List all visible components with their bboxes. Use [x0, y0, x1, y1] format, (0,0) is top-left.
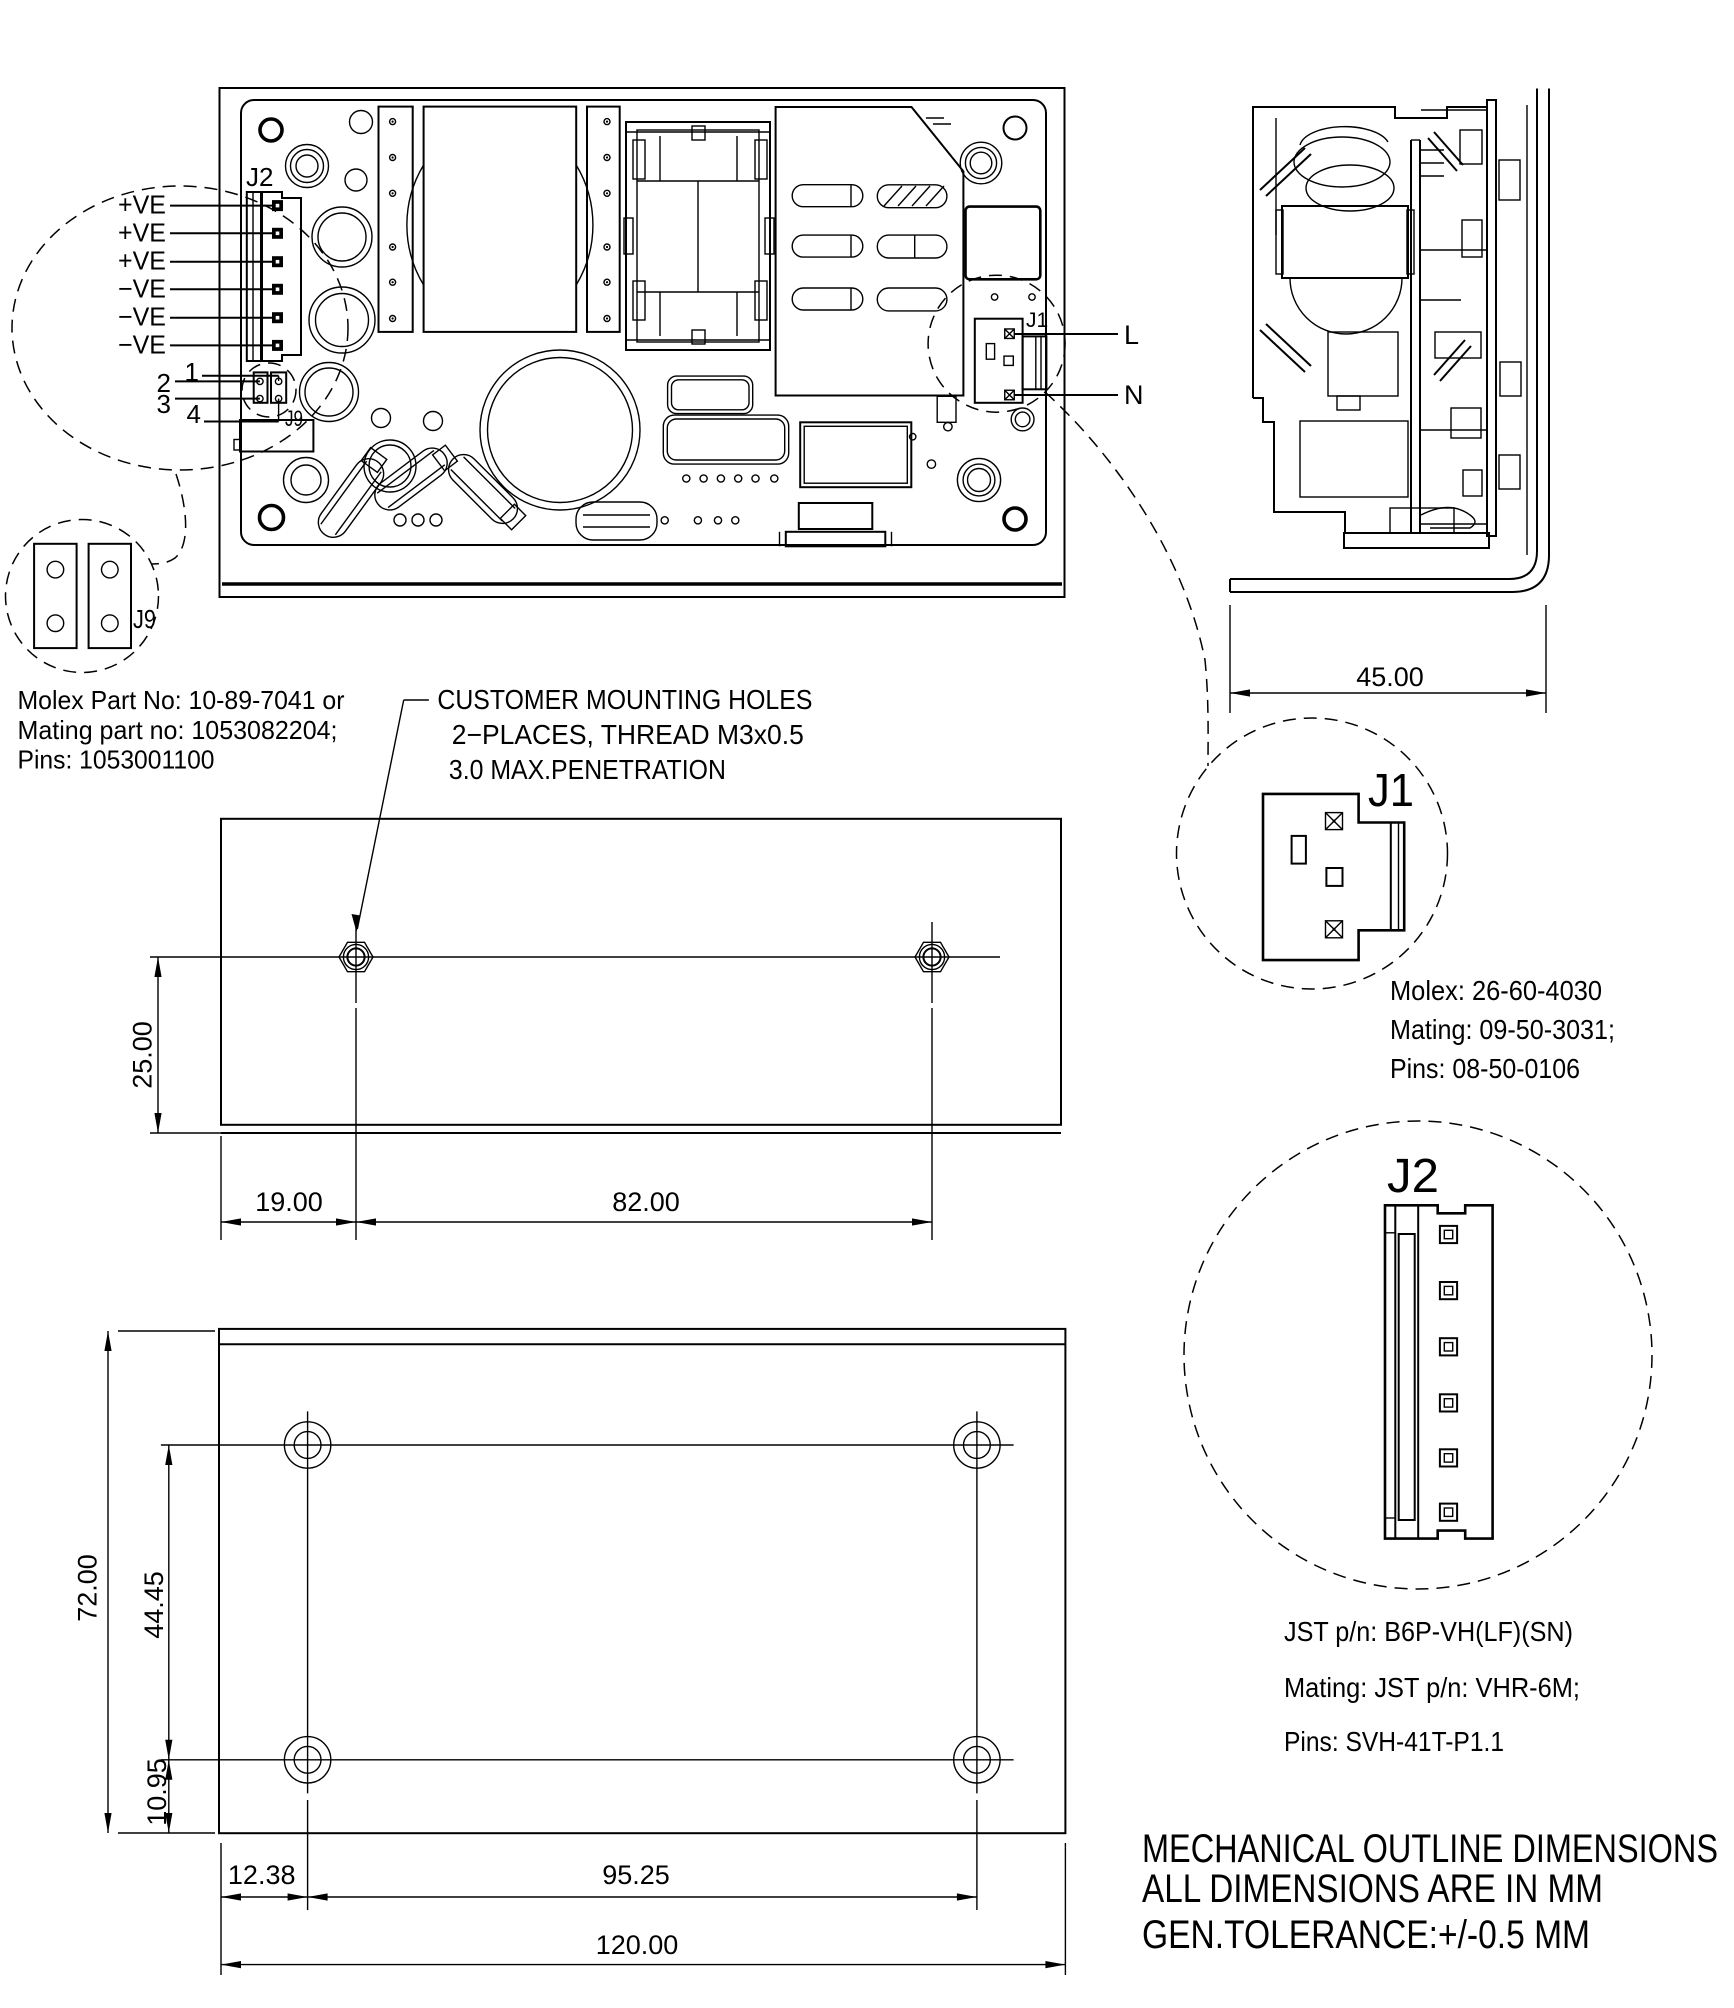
svg-text:L: L [1124, 320, 1139, 350]
svg-text:N: N [1124, 380, 1144, 410]
svg-text:ALL DIMENSIONS ARE IN MM: ALL DIMENSIONS ARE IN MM [1142, 1867, 1603, 1911]
svg-text:1: 1 [185, 357, 199, 387]
svg-text:19.00: 19.00 [255, 1187, 323, 1217]
svg-text:72.00: 72.00 [73, 1554, 103, 1622]
svg-text:J2: J2 [1387, 1150, 1439, 1203]
svg-text:J2: J2 [246, 162, 273, 192]
svg-text:JST p/n: B6P-VH(LF)(SN): JST p/n: B6P-VH(LF)(SN) [1284, 1616, 1573, 1647]
svg-text:Mating: JST p/n: VHR-6M;: Mating: JST p/n: VHR-6M; [1284, 1672, 1580, 1703]
svg-text:−VE: −VE [118, 329, 166, 359]
svg-text:10.95: 10.95 [142, 1758, 172, 1826]
svg-text:CUSTOMER MOUNTING HOLES: CUSTOMER MOUNTING HOLES [437, 684, 812, 715]
svg-text:2−PLACES, THREAD M3x0.5: 2−PLACES, THREAD M3x0.5 [452, 719, 804, 750]
svg-text:J1: J1 [1368, 764, 1414, 816]
svg-text:J1: J1 [1026, 309, 1048, 332]
svg-text:Molex Part No: 10-89-7041 or: Molex Part No: 10-89-7041 or [18, 685, 345, 715]
svg-text:Pins: 1053001100: Pins: 1053001100 [18, 745, 215, 775]
svg-text:82.00: 82.00 [612, 1187, 680, 1217]
svg-text:3.0 MAX.PENETRATION: 3.0 MAX.PENETRATION [449, 754, 726, 785]
svg-text:J9: J9 [133, 604, 156, 634]
svg-text:−VE: −VE [118, 302, 166, 332]
svg-text:Pins: 08-50-0106: Pins: 08-50-0106 [1390, 1053, 1580, 1084]
svg-text:Mating: 09-50-3031;: Mating: 09-50-3031; [1390, 1014, 1615, 1045]
svg-text:−VE: −VE [118, 273, 166, 303]
svg-text:Molex: 26-60-4030: Molex: 26-60-4030 [1390, 975, 1602, 1006]
svg-text:45.00: 45.00 [1356, 662, 1424, 692]
svg-text:4: 4 [187, 399, 201, 429]
svg-text:3: 3 [157, 389, 171, 419]
svg-text:+VE: +VE [118, 246, 166, 276]
svg-text:GEN.TOLERANCE:+/-0.5 MM: GEN.TOLERANCE:+/-0.5 MM [1142, 1913, 1590, 1957]
svg-text:MECHANICAL OUTLINE DIMENSIONS: MECHANICAL OUTLINE DIMENSIONS [1142, 1827, 1718, 1871]
svg-text:Mating part no: 1053082204;: Mating part no: 1053082204; [18, 715, 338, 745]
svg-text:25.00: 25.00 [128, 1021, 158, 1089]
svg-text:+VE: +VE [118, 217, 166, 247]
svg-text:95.25: 95.25 [602, 1860, 670, 1890]
svg-text:44.45: 44.45 [139, 1571, 169, 1639]
svg-text:Pins: SVH-41T-P1.1: Pins: SVH-41T-P1.1 [1284, 1726, 1504, 1757]
svg-text:120.00: 120.00 [596, 1930, 679, 1960]
svg-text:12.38: 12.38 [228, 1860, 296, 1890]
